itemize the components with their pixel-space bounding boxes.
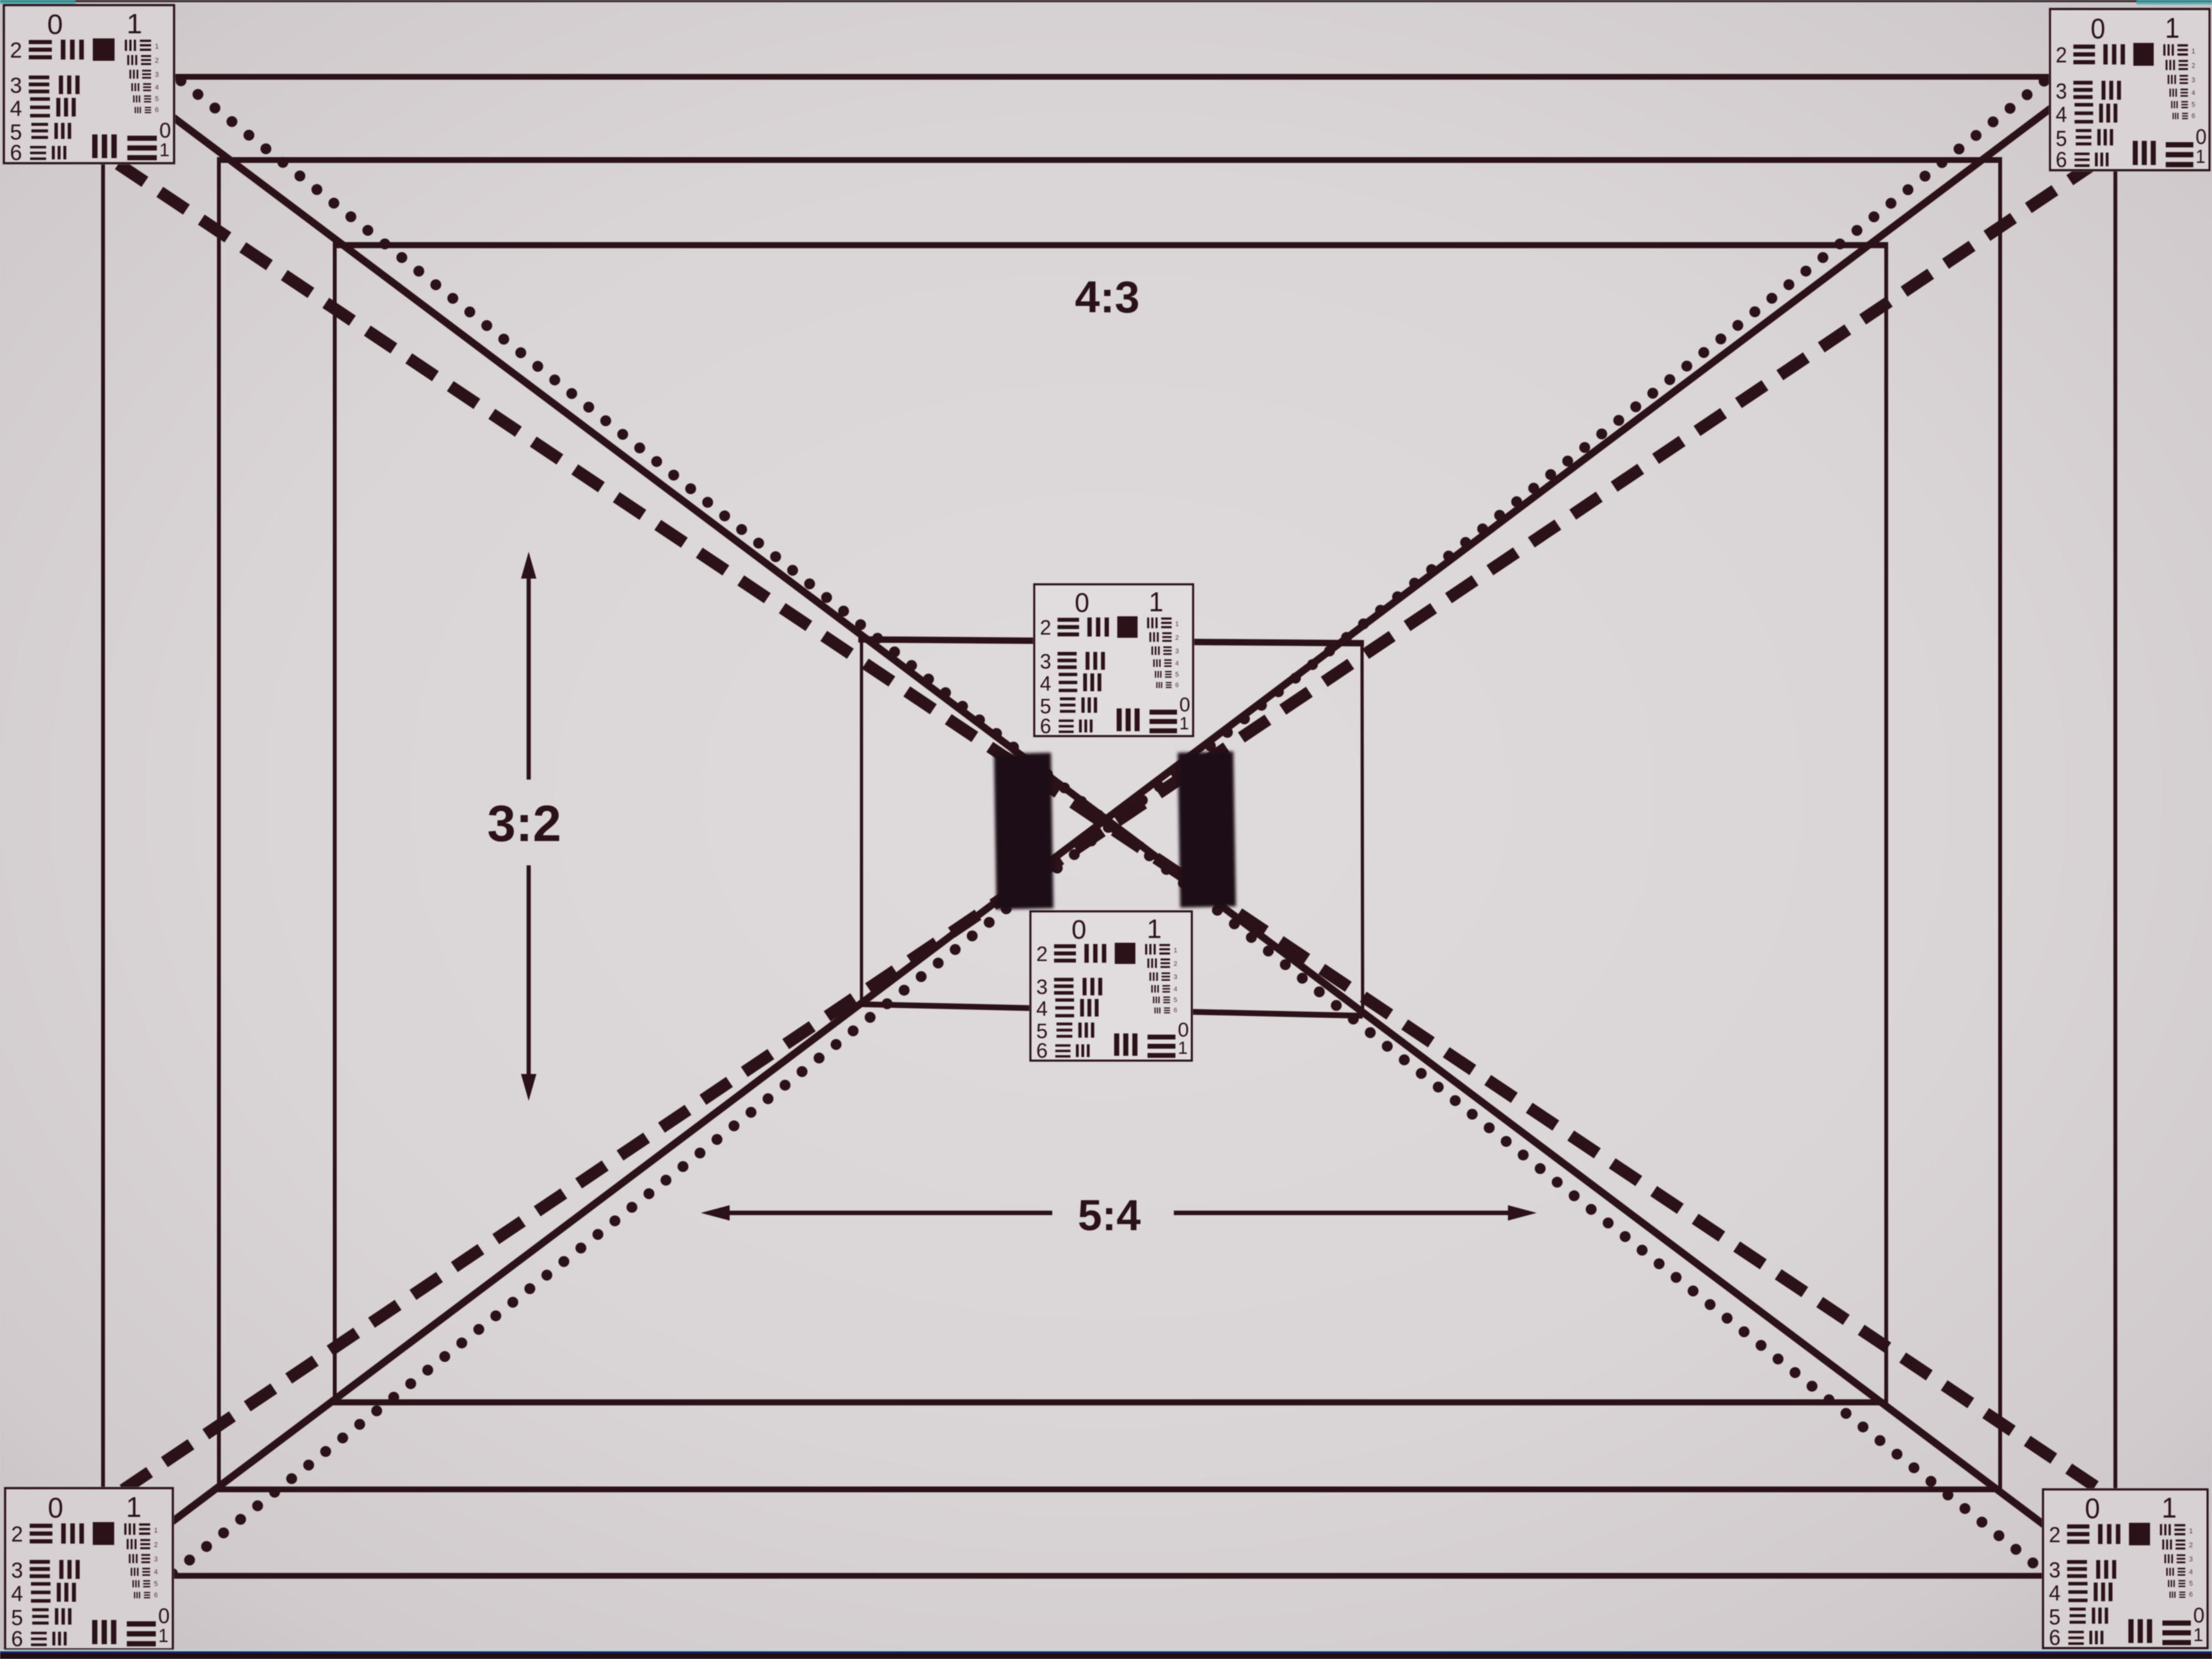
svg-text:3:2: 3:2	[487, 795, 561, 852]
svg-text:5:4: 5:4	[1078, 1191, 1141, 1240]
svg-text:4:3: 4:3	[1075, 272, 1139, 322]
